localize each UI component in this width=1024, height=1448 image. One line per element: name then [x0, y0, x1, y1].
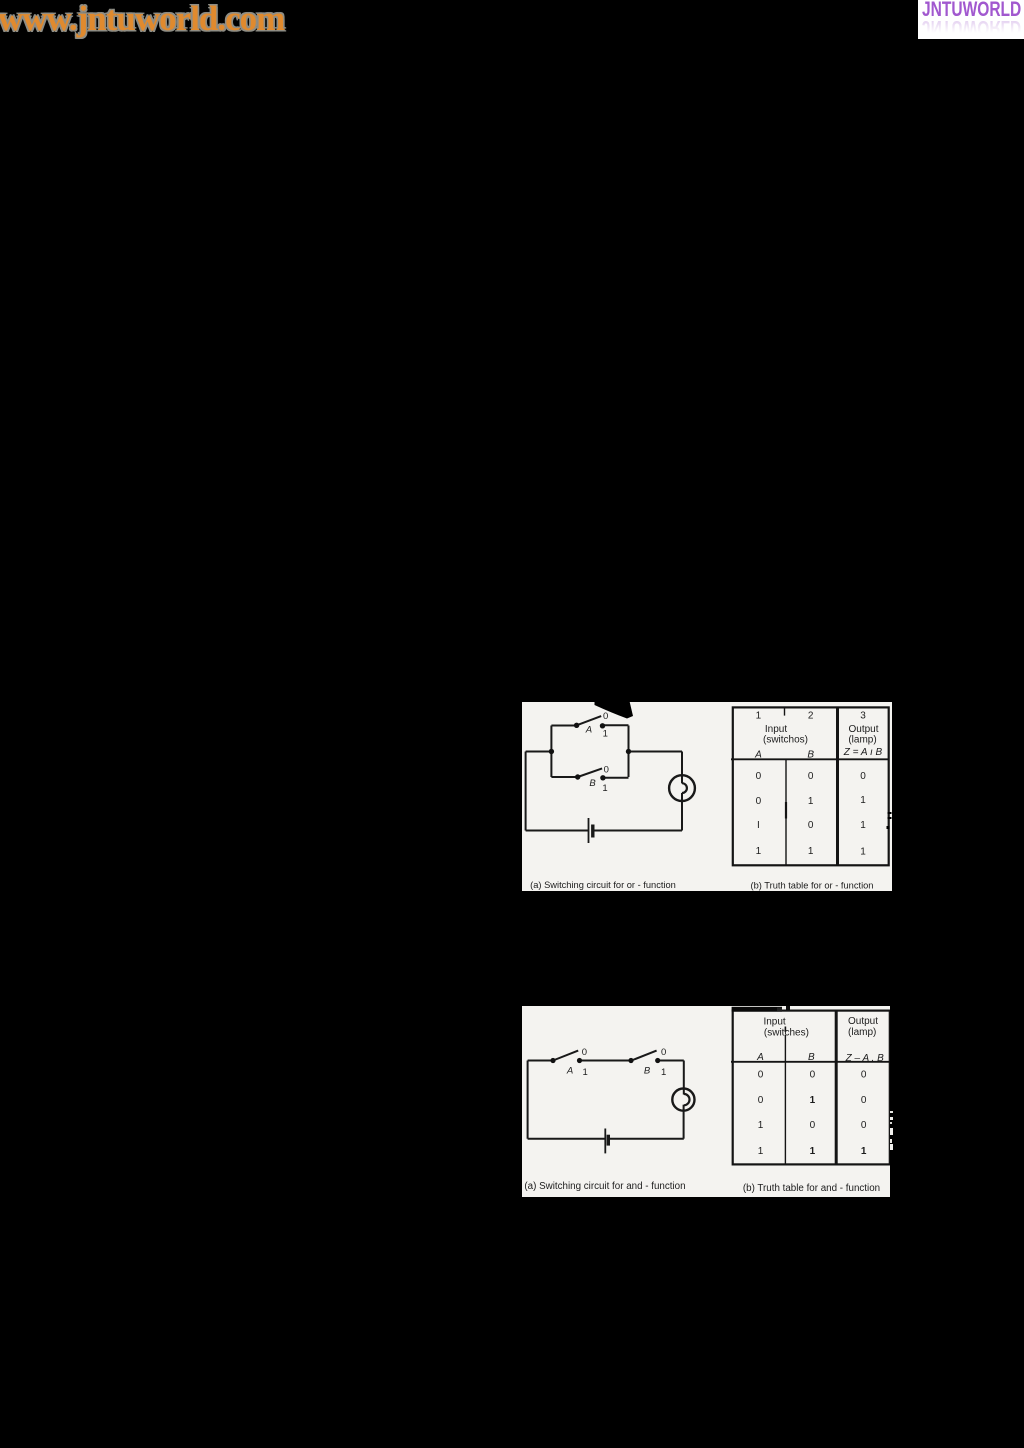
svg-text:(b) Truth table for or - funct: (b) Truth table for or - function [751, 881, 874, 891]
svg-text:1: 1 [758, 1120, 764, 1131]
svg-text:A: A [754, 750, 762, 761]
svg-text:0: 0 [756, 796, 762, 807]
svg-text:0: 0 [758, 1070, 764, 1081]
svg-text:0: 0 [582, 1047, 587, 1058]
svg-text:B: B [589, 778, 596, 789]
svg-text:Z = A ı B: Z = A ı B [843, 747, 883, 758]
svg-text:A: A [585, 725, 592, 736]
svg-text:1: 1 [860, 820, 866, 831]
svg-text:(lamp): (lamp) [848, 1027, 876, 1038]
svg-text:(a) Switching circuit for or -: (a) Switching circuit for or - function [530, 880, 676, 890]
svg-text:0: 0 [603, 711, 608, 722]
svg-text:1: 1 [758, 1146, 764, 1157]
svg-text:1: 1 [808, 846, 814, 857]
svg-text:1: 1 [860, 846, 866, 857]
svg-text:0: 0 [861, 1069, 867, 1080]
svg-text:(switches): (switches) [764, 1027, 809, 1038]
svg-text:I: I [757, 820, 760, 831]
svg-text:3: 3 [860, 711, 866, 722]
svg-text:1: 1 [810, 1095, 816, 1106]
svg-text:1: 1 [661, 1067, 666, 1078]
svg-text:0: 0 [756, 771, 762, 782]
svg-text:1: 1 [810, 1146, 816, 1157]
svg-text:0: 0 [808, 820, 814, 831]
svg-text:B: B [808, 1052, 815, 1063]
svg-text:Input: Input [763, 1017, 785, 1028]
svg-text:B: B [807, 750, 814, 761]
svg-text:Output: Output [848, 724, 878, 735]
svg-text:Input: Input [765, 724, 787, 735]
svg-text:0: 0 [810, 1120, 816, 1131]
svg-text:0: 0 [861, 1120, 867, 1131]
svg-text:B: B [644, 1066, 651, 1077]
svg-text:(lamp): (lamp) [848, 735, 876, 746]
svg-text:(b) Truth table for and - func: (b) Truth table for and - function [743, 1183, 880, 1194]
svg-text:0: 0 [860, 771, 866, 782]
svg-text:Output: Output [848, 1016, 878, 1027]
svg-text:1: 1 [861, 1146, 867, 1157]
svg-text:0: 0 [808, 771, 814, 782]
svg-text:Z – A . B: Z – A . B [845, 1053, 884, 1064]
svg-text:A: A [566, 1066, 573, 1077]
svg-text:1: 1 [808, 796, 814, 807]
svg-text:(switchos): (switchos) [763, 735, 808, 746]
svg-text:1: 1 [603, 729, 608, 740]
svg-text:0: 0 [758, 1095, 764, 1106]
svg-text:2: 2 [808, 711, 814, 722]
svg-text:1: 1 [756, 711, 762, 722]
svg-text:1: 1 [860, 795, 866, 806]
svg-text:0: 0 [661, 1047, 666, 1058]
svg-text:1: 1 [602, 783, 607, 794]
svg-text:0: 0 [604, 765, 609, 776]
svg-text:1: 1 [756, 846, 762, 857]
svg-text:(a) Switching circuit for and: (a) Switching circuit for and - function [524, 1181, 685, 1192]
svg-text:1: 1 [582, 1067, 587, 1078]
svg-text:A: A [756, 1052, 764, 1063]
svg-text:0: 0 [810, 1069, 816, 1080]
svg-text:0: 0 [861, 1095, 867, 1106]
